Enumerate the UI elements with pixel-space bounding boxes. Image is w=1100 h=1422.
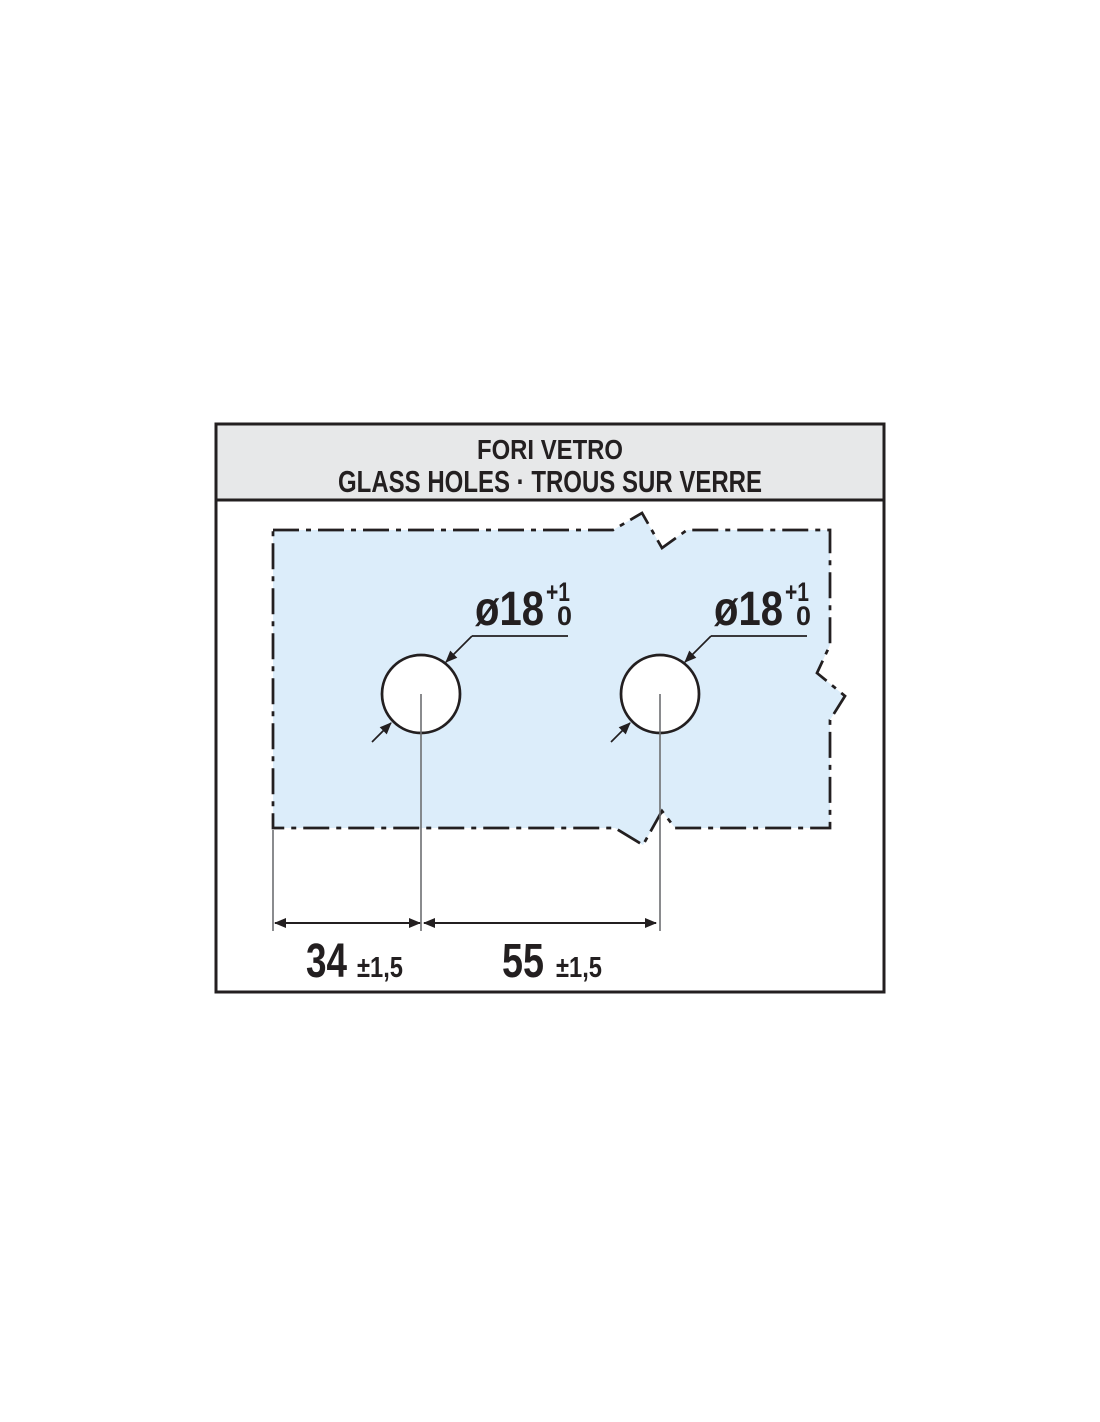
hole-1-diameter-callout: ø18 +1 0 (475, 577, 572, 636)
hole-2-diameter-label: ø18 (714, 583, 783, 636)
drawing-title: FORI VETRO (477, 434, 623, 465)
drawing-header: FORI VETRO GLASS HOLES · TROUS SUR VERRE (216, 424, 884, 500)
dimension-34-label: 34 ±1,5 (306, 935, 403, 988)
dimension-34-value: 34 (306, 935, 347, 988)
dimension-55-tolerance: ±1,5 (556, 952, 602, 984)
hole-1-tolerance-lower: 0 (557, 601, 572, 631)
dimension-55-label: 55 ±1,5 (502, 935, 602, 988)
page: FORI VETRO GLASS HOLES · TROUS SUR VERRE (0, 0, 1100, 1422)
glass-panel-fill (273, 513, 845, 845)
hole-2-tolerance-lower: 0 (796, 601, 811, 631)
hole-1-diameter-label: ø18 (475, 583, 544, 636)
hole-2-diameter-callout: ø18 +1 0 (714, 577, 811, 636)
dimension-34-tolerance: ±1,5 (357, 952, 403, 984)
dimension-55-value: 55 (502, 935, 544, 988)
glass-panel (273, 513, 845, 845)
glass-holes-drawing: FORI VETRO GLASS HOLES · TROUS SUR VERRE (0, 0, 1100, 1422)
drawing-subtitle: GLASS HOLES · TROUS SUR VERRE (338, 464, 762, 499)
